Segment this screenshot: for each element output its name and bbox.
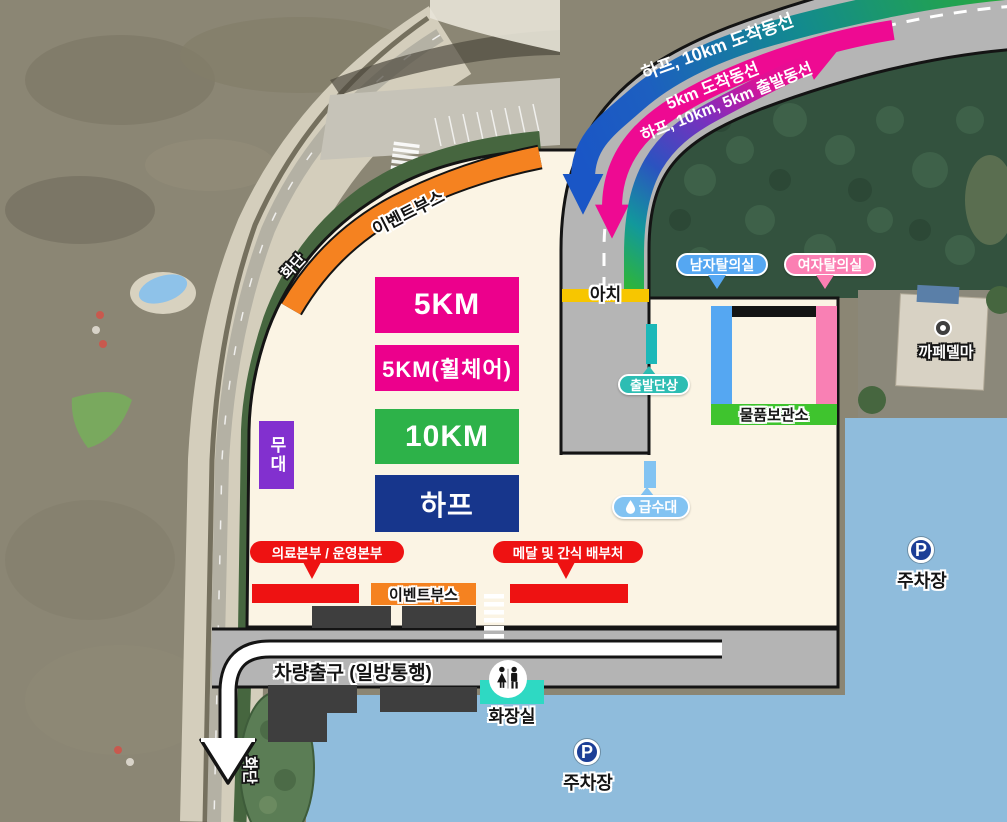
mens-changing-label: 남자탈의실	[676, 253, 768, 276]
storage-bar-left	[711, 306, 732, 406]
water-station-text: 급수대	[639, 497, 678, 517]
cafe-label: 까페델마	[900, 342, 992, 360]
storage-bar-right	[816, 306, 837, 406]
parking-east-icon: P	[908, 537, 934, 563]
womens-changing-label: 여자탈의실	[784, 253, 876, 276]
parking-south-icon: P	[574, 739, 600, 765]
start-podium-label: 출발단상	[618, 374, 690, 395]
stage-box: 무대	[259, 421, 294, 489]
zone-half: 하프	[375, 475, 519, 532]
zone-5km-wheelchair: 5KM(휠체어)	[375, 345, 519, 391]
zone-10km: 10KM	[375, 409, 519, 464]
flowerbed-bottom-label: 화단	[241, 756, 258, 784]
event-booth-bottom: 이벤트부스	[371, 583, 476, 605]
water-station-marker	[644, 461, 656, 488]
parking-south-label: 주차장	[548, 771, 628, 793]
medical-ops-pointer	[303, 562, 321, 579]
parking-east-label: 주차장	[882, 569, 962, 591]
station-bar-right	[510, 584, 628, 603]
storage-label: 물품보관소	[705, 404, 843, 425]
park-green	[72, 392, 132, 448]
restroom-icon	[489, 660, 527, 698]
arch-label: 아치	[558, 281, 653, 303]
medal-snack-pointer	[557, 562, 575, 579]
vehicle-exit-label: 차량출구 (일방통행)	[258, 660, 448, 682]
womens-changing-pointer	[816, 275, 834, 289]
station-bar-left	[252, 584, 359, 603]
zone-5km: 5KM	[375, 277, 519, 333]
toilet-label: 화장실	[476, 704, 548, 724]
medical-ops-bubble: 의료본부 / 운영본부	[250, 541, 404, 563]
water-drop-icon	[625, 500, 636, 514]
water-station-label: 급수대	[612, 495, 690, 519]
cafe-marker	[936, 321, 950, 335]
mens-changing-pointer	[708, 275, 726, 289]
storage-bar-top	[732, 306, 816, 317]
medal-snack-bubble: 메달 및 간식 배부처	[493, 541, 643, 563]
start-podium-marker	[646, 324, 657, 364]
building	[380, 687, 477, 712]
building	[402, 606, 476, 628]
event-venue-map: 하프, 10km 도착동선 5km 도착동선 하프, 10km, 5km 출발동…	[0, 0, 1007, 822]
building	[268, 685, 327, 742]
building	[312, 606, 391, 628]
